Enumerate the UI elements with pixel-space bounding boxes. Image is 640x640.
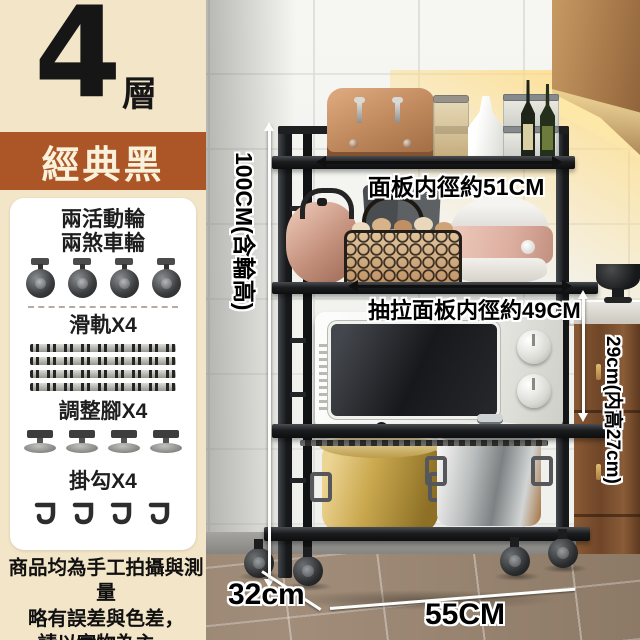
hook-icon [33, 500, 59, 528]
wheels-title-line2: 兩煞車輪 [10, 232, 196, 256]
rack-shelf-3-pullout [272, 424, 620, 438]
product-infographic: 面板内徑約51CM 抽拉面板内徑約49CM 100CM(含輪高) 29cm(内高… [0, 0, 640, 640]
pullout-slide-rail [300, 440, 548, 446]
caster-wheel [500, 546, 530, 576]
height-line-29 [582, 294, 585, 418]
hook-icon [71, 500, 97, 528]
microwave-dial [517, 374, 551, 408]
feet-icons-row [10, 430, 196, 460]
pot-bowl [596, 264, 640, 290]
pot-handle [425, 456, 447, 486]
hooks-label: 掛勾X4 [10, 470, 196, 494]
toaster-dial [349, 139, 358, 148]
height-line-100 [268, 126, 271, 584]
rack-post-front-left [278, 126, 292, 578]
annotation-top-width: 面板内徑約51CM [368, 168, 544, 202]
bottle-label [542, 126, 553, 150]
pot-handle [310, 472, 332, 502]
hook-icon [147, 500, 173, 528]
gold-pot [322, 446, 438, 532]
info-sidebar: 4 層 經典黑 兩活動輪 兩煞車輪 滑軌X4 調整腳X4 [0, 0, 206, 640]
caster-icons-row [10, 258, 196, 302]
rack-side-bar [290, 338, 306, 343]
annotation-base-width: 55CM [425, 598, 505, 632]
width-arrow-49 [352, 285, 568, 288]
disclaimer-text: 商品均為手工拍攝與測量 略有誤差與色差， 請以實物為主。 [0, 556, 212, 640]
slide-rail-icon [30, 357, 176, 365]
annotation-depth: 32cm [228, 578, 305, 612]
rails-label: 滑軌X4 [10, 314, 196, 338]
toaster-dial [403, 139, 412, 148]
stove-pot [596, 260, 640, 304]
tier-count: 4 [34, 0, 122, 123]
rice-cooker-base [453, 258, 547, 284]
storage-jar [433, 100, 469, 162]
microwave-dial [517, 330, 551, 364]
feet-label: 調整腳X4 [10, 400, 196, 424]
adjustable-foot-icon [22, 430, 58, 460]
steel-pot-knob [477, 414, 503, 422]
toaster-lever [357, 97, 362, 123]
wheels-title-line1: 兩活動輪 [10, 208, 196, 232]
toaster [327, 88, 435, 162]
microwave-vents [319, 344, 328, 410]
adjustable-foot-icon [148, 430, 184, 460]
caster-wheel-icon [63, 258, 101, 302]
kettle-handle [300, 188, 354, 219]
width-arrow-51 [320, 161, 558, 164]
rack-side-bar [290, 478, 306, 483]
tier-unit-label: 層 [122, 66, 157, 117]
adjustable-foot-icon [106, 430, 142, 460]
microwave [315, 312, 563, 430]
bottle-label [523, 124, 534, 150]
annotation-compartment-height: 29cm(内高27cm) [601, 336, 628, 484]
caster-wheel [548, 538, 578, 568]
color-name-band: 經典黑 [0, 132, 206, 190]
pot-handle [531, 456, 553, 486]
slide-rail-icon [30, 370, 176, 378]
slide-rail-icon [30, 344, 176, 352]
microwave-door [331, 324, 497, 416]
toaster-lever [395, 97, 400, 123]
disclaimer-line-3: 請以實物為主。 [0, 632, 212, 640]
rice-cooker [447, 196, 553, 284]
drawer-divider [574, 514, 640, 517]
steel-pot [437, 434, 541, 526]
hook-icon [109, 500, 135, 528]
annotation-total-height: 100CM(含輪高) [229, 152, 263, 310]
rack-side-bar [290, 392, 306, 397]
accessories-card: 兩活動輪 兩煞車輪 滑軌X4 調整腳X4 掛勾X4 [10, 198, 196, 550]
slide-rail-icon [30, 383, 176, 391]
disclaimer-line-2: 略有誤差與色差， [0, 607, 212, 632]
adjustable-foot-icon [64, 430, 100, 460]
kettle-knob [317, 198, 327, 206]
caster-wheel-icon [21, 258, 59, 302]
caster-wheel-icon [147, 258, 185, 302]
pot-base [604, 297, 632, 303]
dashed-divider [28, 306, 178, 308]
rack-shelf-4 [264, 527, 590, 541]
disclaimer-line-1: 商品均為手工拍攝與測量 [0, 556, 212, 607]
rice-cooker-button [521, 240, 535, 254]
caster-wheel-icon [105, 258, 143, 302]
hook-icons-row [10, 500, 196, 528]
annotation-pullout-width: 抽拉面板内徑約49CM [368, 293, 581, 325]
